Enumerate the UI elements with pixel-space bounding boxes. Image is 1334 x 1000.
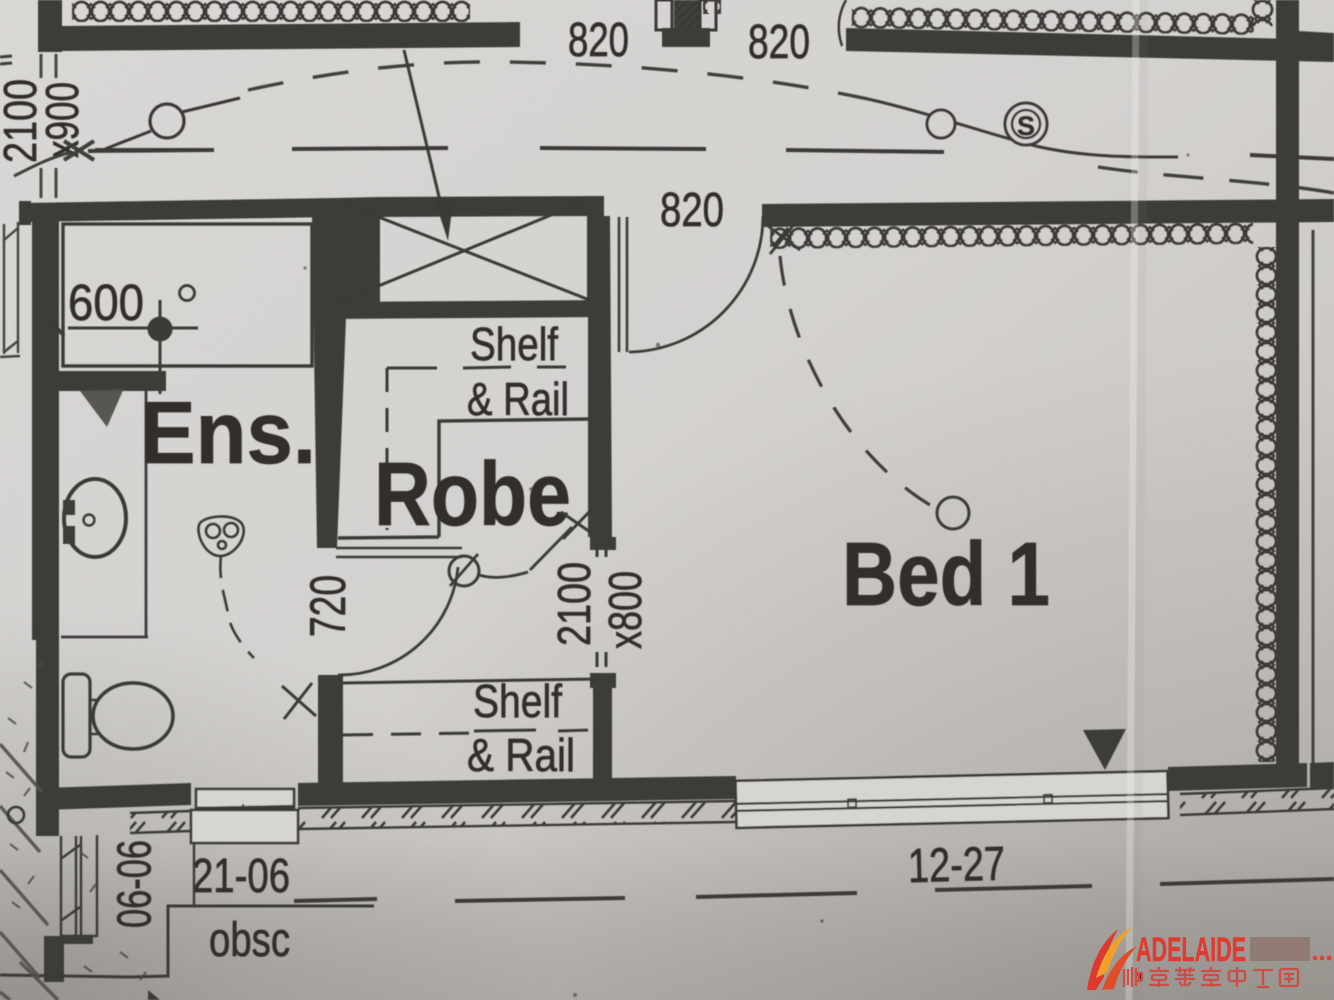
- svg-text:Shelf: Shelf: [470, 318, 558, 370]
- svg-text:820: 820: [568, 14, 629, 67]
- svg-text:S: S: [1017, 111, 1035, 141]
- svg-text:Bed 1: Bed 1: [842, 525, 1050, 625]
- svg-text:12-27: 12-27: [907, 838, 1005, 894]
- svg-text:x800: x800: [599, 571, 651, 649]
- svg-text:Ens.: Ens.: [140, 383, 316, 482]
- svg-text:720: 720: [300, 575, 356, 637]
- svg-text:x900: x900: [36, 82, 88, 158]
- svg-text:06-06: 06-06: [109, 840, 162, 928]
- svg-text:& Rail: & Rail: [467, 373, 569, 425]
- svg-text:600: 600: [68, 274, 144, 331]
- svg-text:Shelf: Shelf: [473, 675, 562, 727]
- svg-text:820: 820: [748, 16, 810, 69]
- svg-text:2100: 2100: [548, 562, 600, 646]
- svg-text:& Rail: & Rail: [467, 729, 575, 781]
- svg-text:obsc: obsc: [209, 914, 290, 967]
- svg-text:ADELAIDE: ADELAIDE: [1136, 931, 1246, 969]
- svg-text:21-06: 21-06: [192, 850, 290, 903]
- svg-text:820: 820: [660, 184, 724, 237]
- svg-text:Robe: Robe: [374, 445, 571, 545]
